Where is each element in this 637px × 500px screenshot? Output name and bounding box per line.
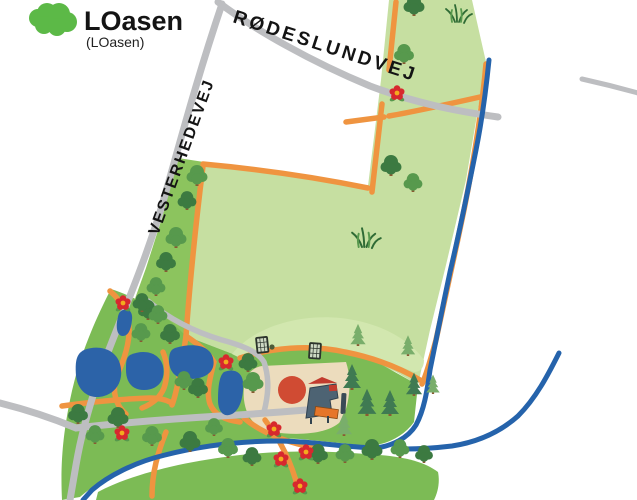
logo-subtitle: (LOasen) [86, 34, 144, 50]
park-map: RØDESLUNDVEJ VESTERHEDEVEJ LOasen (LOase… [0, 0, 637, 500]
pond [169, 345, 214, 379]
logo-title: LOasen [84, 6, 183, 36]
ball-icon [269, 344, 274, 349]
play-circle [278, 376, 306, 404]
football-goal-icon [256, 337, 269, 353]
pond [76, 348, 122, 397]
logo: LOasen (LOasen) [29, 3, 183, 50]
pond [126, 352, 164, 390]
park-map-page: RØDESLUNDVEJ VESTERHEDEVEJ LOasen (LOase… [0, 0, 637, 500]
football-goal-icon [309, 343, 321, 359]
logo-leaf-icon [29, 3, 77, 36]
road-rodeslundvej-east [582, 79, 637, 93]
